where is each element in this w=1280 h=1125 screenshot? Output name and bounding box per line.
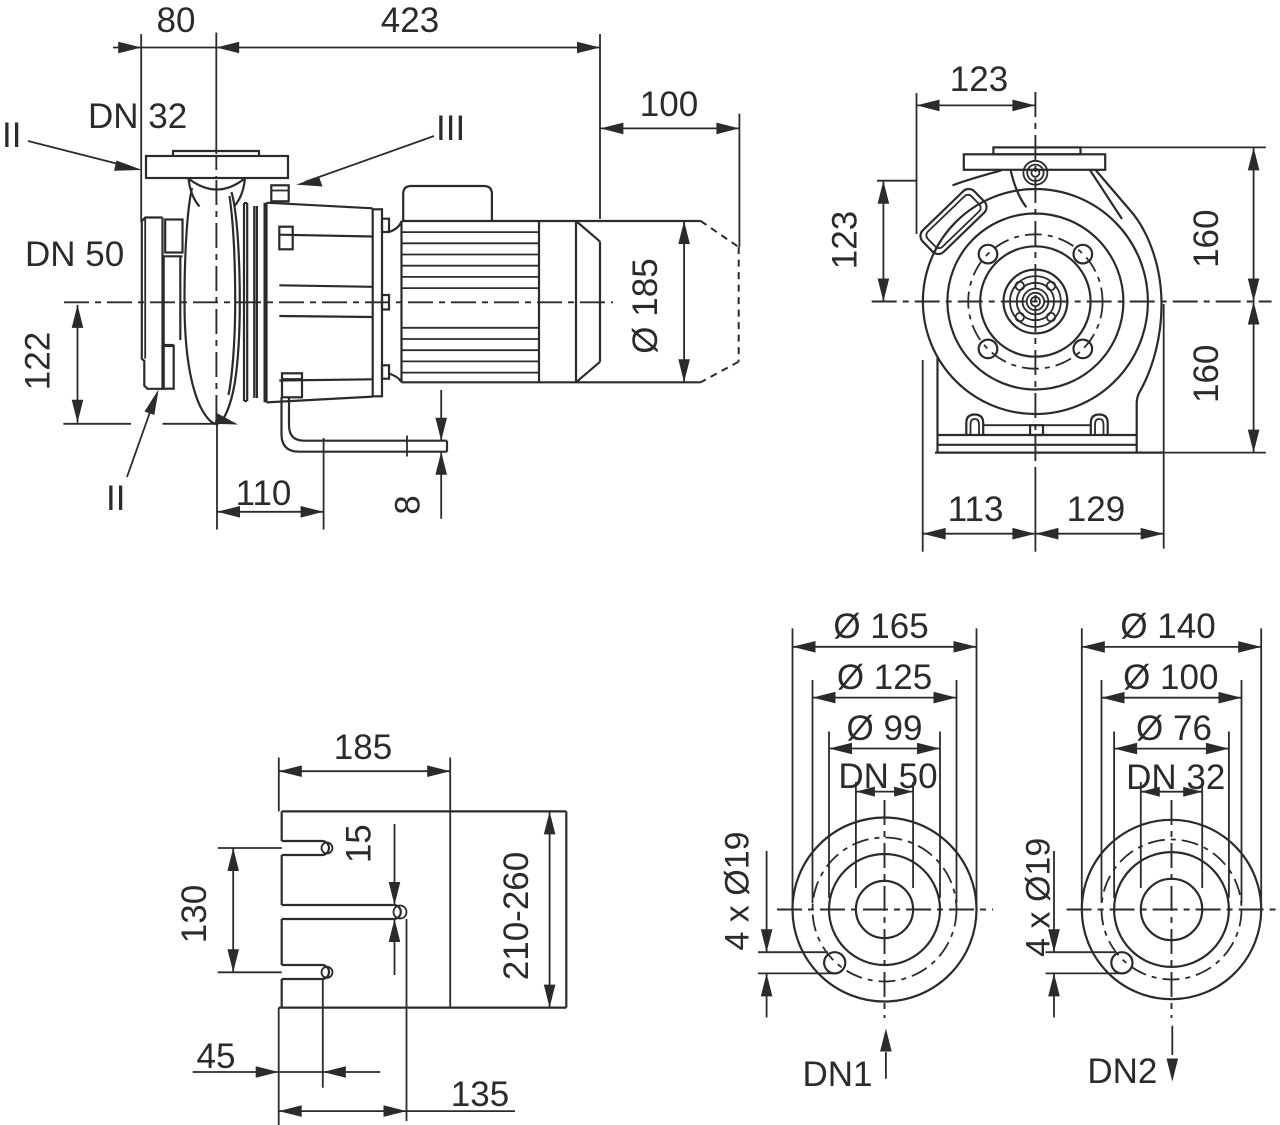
svg-text:Ø 185: Ø 185 (626, 258, 665, 353)
svg-text:122: 122 (19, 332, 58, 390)
svg-text:4 x Ø19: 4 x Ø19 (719, 831, 757, 950)
svg-text:8: 8 (388, 495, 427, 514)
svg-text:Ø 100: Ø 100 (1123, 658, 1218, 697)
svg-text:130: 130 (175, 885, 214, 943)
svg-text:185: 185 (334, 728, 392, 767)
svg-text:Ø 165: Ø 165 (833, 607, 928, 646)
svg-text:Ø 140: Ø 140 (1120, 607, 1215, 646)
svg-text:DN1: DN1 (802, 1055, 872, 1094)
svg-text:4 x Ø19: 4 x Ø19 (1020, 838, 1058, 957)
svg-text:423: 423 (381, 1, 439, 40)
svg-text:110: 110 (236, 474, 292, 513)
svg-text:II: II (106, 479, 125, 518)
svg-text:160: 160 (1187, 209, 1226, 267)
svg-text:160: 160 (1187, 345, 1226, 403)
svg-text:100: 100 (640, 85, 698, 124)
svg-text:III: III (436, 109, 465, 148)
svg-text:135: 135 (451, 1075, 509, 1114)
svg-text:DN 50: DN 50 (838, 757, 937, 796)
svg-text:15: 15 (340, 824, 379, 863)
svg-text:Ø 99: Ø 99 (847, 709, 923, 748)
svg-text:DN 32: DN 32 (88, 97, 187, 136)
svg-text:129: 129 (1067, 490, 1125, 529)
svg-text:123: 123 (825, 211, 864, 269)
svg-text:DN 50: DN 50 (25, 235, 124, 274)
svg-text:DN2: DN2 (1087, 1052, 1157, 1091)
svg-text:II: II (2, 116, 21, 155)
svg-text:210-260: 210-260 (497, 852, 536, 980)
svg-text:80: 80 (157, 1, 196, 40)
svg-text:Ø 76: Ø 76 (1136, 709, 1212, 748)
svg-text:123: 123 (950, 60, 1008, 99)
svg-text:45: 45 (197, 1037, 236, 1076)
svg-text:Ø 125: Ø 125 (837, 658, 932, 697)
svg-text:113: 113 (948, 490, 1004, 529)
